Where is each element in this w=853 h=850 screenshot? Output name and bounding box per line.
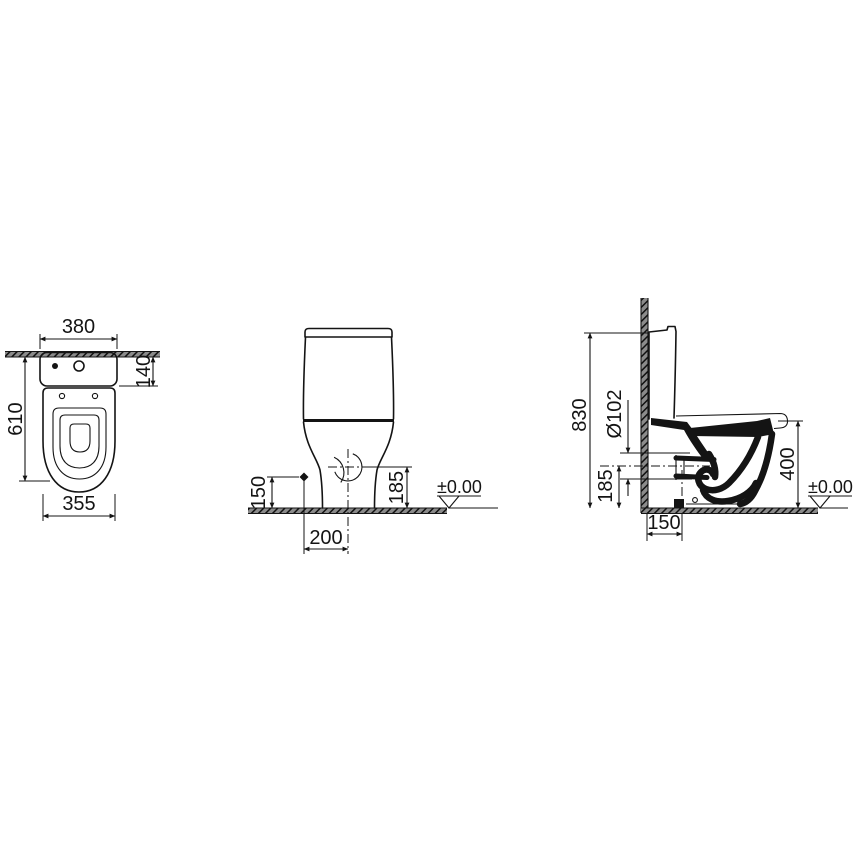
dim-label-d102: Ø102 <box>604 390 626 439</box>
dim-label-380: 380 <box>62 316 95 338</box>
dim-label-355: 355 <box>62 493 95 515</box>
dim-label-400: 400 <box>777 447 799 480</box>
side-wall-hatch <box>641 298 648 513</box>
plan-inlet-dot <box>52 363 58 369</box>
dim-label-150-front: 150 <box>248 476 270 509</box>
dim-plan-cistern-depth: 140 <box>119 355 158 388</box>
plan-bowl-outline <box>43 388 115 492</box>
side-fixing-hole <box>693 498 698 503</box>
front-floor-hatch <box>248 508 498 514</box>
front-cistern-lid <box>305 329 392 338</box>
side-datum-symbol: ±0.00 <box>808 477 853 508</box>
front-cistern-body <box>303 337 393 419</box>
dim-side-outlet-wall-distance: 150 <box>647 512 682 541</box>
dim-label-185-front: 185 <box>386 471 408 504</box>
dim-side-rim-height: 400 <box>777 421 803 508</box>
front-inlet-point <box>300 473 309 482</box>
dim-label-140: 140 <box>133 355 155 388</box>
side-bowl-inner <box>698 437 758 490</box>
side-view: 830 Ø102 185 400 150 <box>569 298 853 541</box>
front-cistern-joint <box>303 419 394 422</box>
dim-plan-width-top: 380 <box>40 316 117 349</box>
dim-label-185-side: 185 <box>595 469 617 502</box>
side-rim-section <box>690 418 774 437</box>
plan-flush-button <box>74 361 84 371</box>
dim-front-outlet-offset: 200 <box>304 527 348 549</box>
dim-label-830: 830 <box>569 398 591 431</box>
plan-view: 380 140 610 355 <box>5 316 160 521</box>
front-view: 150 185 200 ±0.00 <box>248 329 498 555</box>
dim-label-610: 610 <box>5 402 27 435</box>
dim-side-trap-height: 185 <box>595 466 619 508</box>
plan-water-spot <box>70 424 90 452</box>
side-cistern <box>649 327 676 420</box>
dim-label-200: 200 <box>309 527 342 549</box>
dim-label-150-side: 150 <box>647 512 680 534</box>
toilet-dimension-drawing: 380 140 610 355 <box>0 0 853 850</box>
front-datum-symbol: ±0.00 <box>437 477 482 508</box>
dim-front-inlet-height: 150 <box>248 476 299 509</box>
plan-seat-inner <box>60 415 99 468</box>
side-cistern-floor-section <box>651 418 713 460</box>
plan-hinge-hole-left <box>59 393 64 398</box>
front-datum-label: ±0.00 <box>437 477 482 497</box>
technical-drawing-page: 380 140 610 355 <box>0 0 853 850</box>
dim-plan-bowl-width: 355 <box>43 493 115 521</box>
side-datum-label: ±0.00 <box>808 477 853 497</box>
dim-front-trap-height: 185 <box>363 467 412 508</box>
plan-hinge-hole-right <box>92 393 97 398</box>
